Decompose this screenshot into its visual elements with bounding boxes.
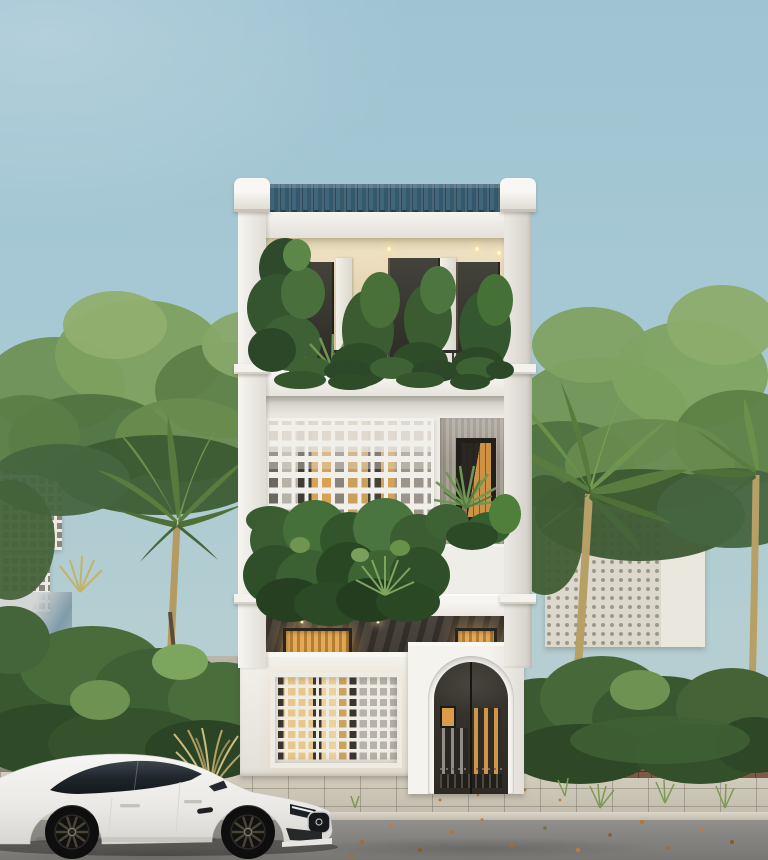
balcony-vegetation (0, 0, 768, 860)
bay-window-plants (425, 466, 521, 550)
car-grille (308, 812, 330, 833)
car-wheel-front (221, 805, 275, 859)
scene-canvas (0, 0, 768, 860)
car-wheel-rear (45, 805, 99, 859)
mid-floor-vines (243, 498, 450, 626)
car-door-handle (184, 800, 202, 803)
car-door-handle (120, 804, 140, 807)
sports-car (0, 742, 340, 860)
top-balcony-plants (247, 238, 514, 390)
